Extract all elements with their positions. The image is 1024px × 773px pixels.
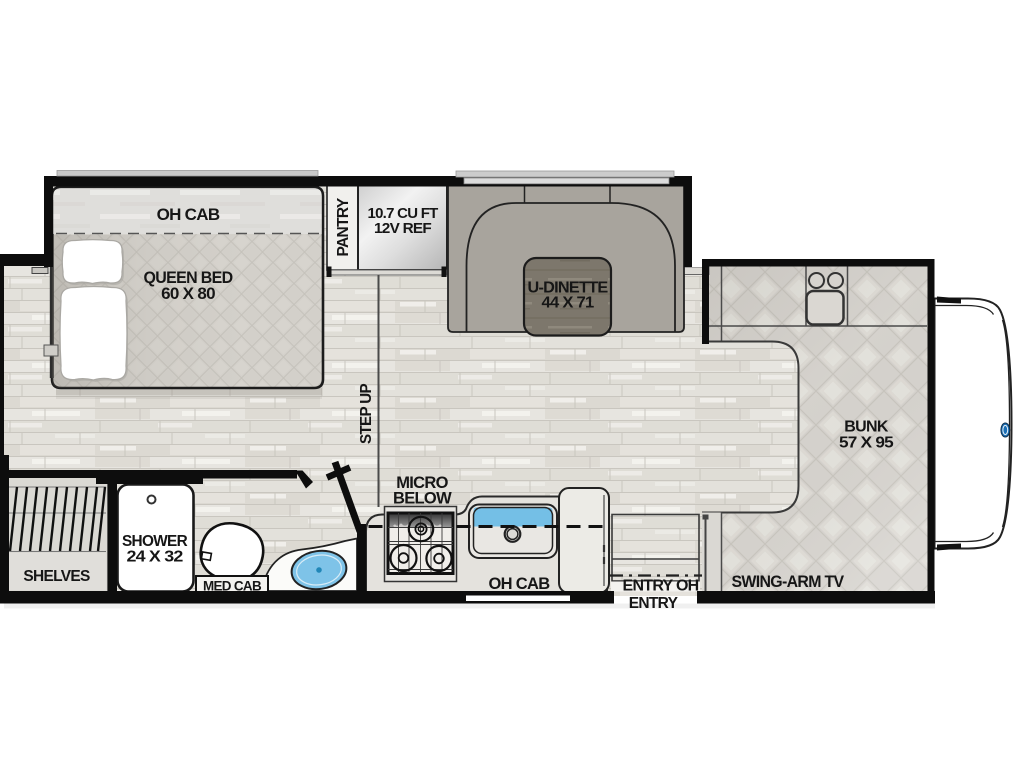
svg-text:PANTRY: PANTRY	[335, 197, 352, 256]
svg-text:BELOW: BELOW	[393, 490, 452, 508]
svg-text:ENTRY: ENTRY	[629, 595, 679, 612]
svg-text:24 X 32: 24 X 32	[127, 549, 183, 566]
svg-text:57 X 95: 57 X 95	[839, 435, 894, 452]
svg-text:BUNK: BUNK	[844, 419, 889, 436]
svg-text:10.7 CU FT: 10.7 CU FT	[368, 206, 439, 222]
svg-text:12V REF: 12V REF	[374, 221, 432, 237]
svg-text:44 X 71: 44 X 71	[542, 295, 595, 312]
svg-text:STEP UP: STEP UP	[358, 384, 375, 444]
svg-text:OH CAB: OH CAB	[489, 575, 551, 593]
svg-text:60 X 80: 60 X 80	[161, 284, 215, 303]
svg-text:MED CAB: MED CAB	[203, 578, 262, 594]
svg-text:ENTRY OH: ENTRY OH	[623, 578, 700, 595]
svg-text:SWING-ARM TV: SWING-ARM TV	[732, 573, 845, 591]
svg-text:SHOWER: SHOWER	[122, 533, 187, 550]
svg-text:OH CAB: OH CAB	[157, 205, 220, 224]
svg-text:SHELVES: SHELVES	[23, 568, 90, 585]
